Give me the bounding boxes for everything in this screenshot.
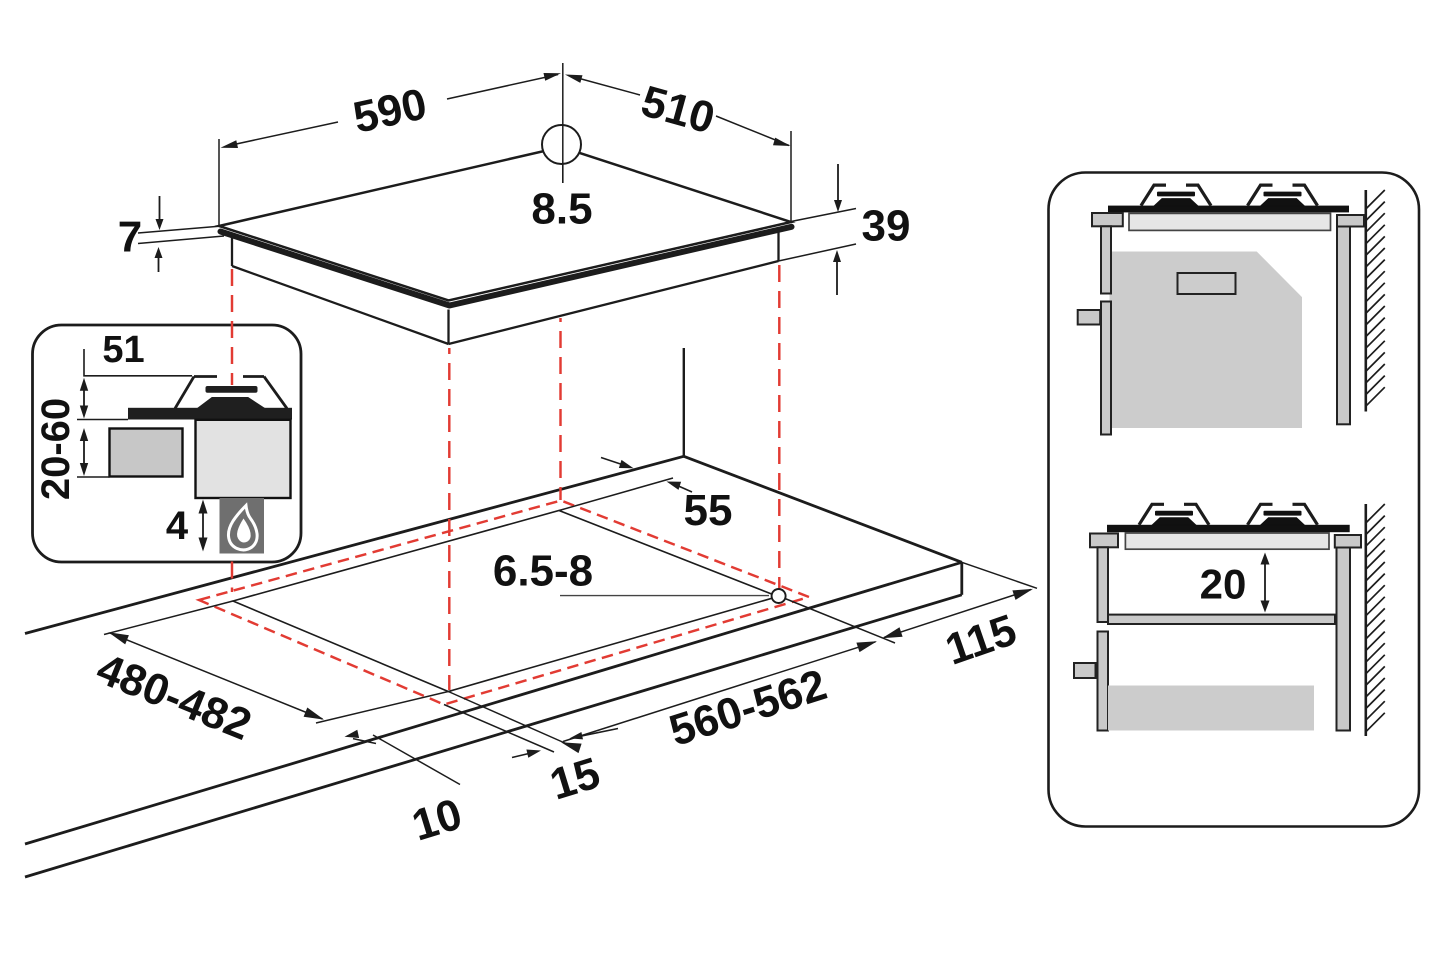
svg-text:55: 55 xyxy=(684,486,733,535)
svg-text:20-60: 20-60 xyxy=(34,398,78,500)
svg-text:6.5-8: 6.5-8 xyxy=(493,547,593,596)
svg-text:39: 39 xyxy=(862,202,911,251)
svg-text:7: 7 xyxy=(118,213,142,262)
svg-text:20: 20 xyxy=(1200,561,1247,608)
svg-text:51: 51 xyxy=(102,329,144,371)
svg-text:8.5: 8.5 xyxy=(531,185,592,234)
svg-text:4: 4 xyxy=(166,504,189,548)
